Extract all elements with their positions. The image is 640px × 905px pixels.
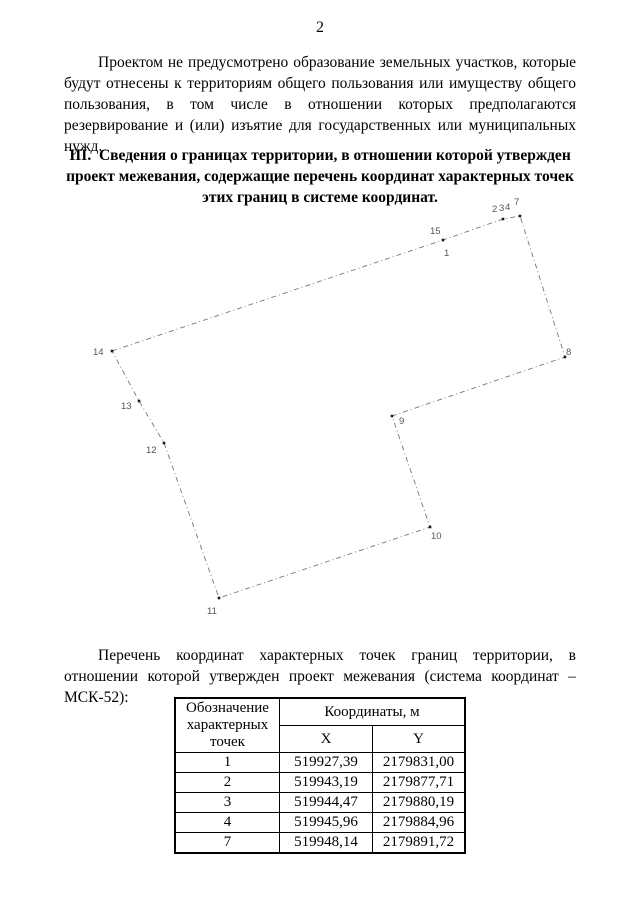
table-row: 2519943,192179877,71 bbox=[175, 773, 465, 793]
vertex-label-15: 15 bbox=[430, 226, 441, 237]
point-cell: 2 bbox=[175, 773, 280, 793]
vertex-dot-2-3-4 bbox=[502, 218, 505, 221]
vertex-label-12: 12 bbox=[146, 445, 157, 456]
table-row: 3519944,472179880,19 bbox=[175, 793, 465, 813]
boundary-plan-svg: 1512347148139121011 bbox=[0, 195, 640, 630]
document-page: 2 Проектом не предусмотрено образование … bbox=[0, 0, 640, 905]
point-cell: 1 bbox=[175, 753, 280, 773]
vertex-label-1: 1 bbox=[444, 248, 449, 259]
table-row: 4519945,962179884,96 bbox=[175, 813, 465, 833]
vertex-label-9: 9 bbox=[399, 416, 404, 427]
vertex-label-14: 14 bbox=[93, 347, 104, 358]
point-cell: 3 bbox=[175, 793, 280, 813]
x-cell: 519944,47 bbox=[280, 793, 373, 813]
points-column-header: Обозначение характерных точек bbox=[175, 698, 280, 753]
vertex-dot-9 bbox=[391, 415, 394, 418]
vertex-dot-15-1 bbox=[442, 239, 445, 242]
point-cell: 7 bbox=[175, 833, 280, 854]
vertex-label-11: 11 bbox=[207, 606, 217, 617]
x-cell: 519948,14 bbox=[280, 833, 373, 854]
table-row: 7519948,142179891,72 bbox=[175, 833, 465, 854]
vertex-label-3: 3 bbox=[499, 203, 504, 214]
boundary-polygon bbox=[112, 216, 565, 598]
boundary-plan-diagram: 1512347148139121011 bbox=[0, 195, 640, 630]
coordinates-table: Обозначение характерных точек Координаты… bbox=[174, 697, 466, 854]
x-cell: 519945,96 bbox=[280, 813, 373, 833]
vertex-label-10: 10 bbox=[431, 531, 442, 542]
y-cell: 2179880,19 bbox=[373, 793, 466, 813]
table-header-row: Обозначение характерных точек Координаты… bbox=[175, 698, 465, 726]
x-column-header: X bbox=[280, 726, 373, 753]
y-cell: 2179884,96 bbox=[373, 813, 466, 833]
vertex-dot-13 bbox=[138, 400, 141, 403]
point-cell: 4 bbox=[175, 813, 280, 833]
vertex-dot-14 bbox=[111, 350, 114, 353]
y-cell: 2179877,71 bbox=[373, 773, 466, 793]
page-number: 2 bbox=[0, 19, 640, 37]
vertex-dot-11 bbox=[218, 597, 221, 600]
x-cell: 519943,19 bbox=[280, 773, 373, 793]
y-cell: 2179831,00 bbox=[373, 753, 466, 773]
intro-paragraph: Проектом не предусмотрено образование зе… bbox=[64, 52, 576, 157]
vertex-label-13: 13 bbox=[121, 401, 132, 412]
table-row: 1519927,392179831,00 bbox=[175, 753, 465, 773]
vertex-dot-12 bbox=[163, 442, 166, 445]
vertex-label-8: 8 bbox=[566, 347, 571, 358]
coords-column-header: Координаты, м bbox=[280, 698, 466, 726]
vertex-dot-10 bbox=[429, 526, 432, 529]
y-cell: 2179891,72 bbox=[373, 833, 466, 854]
vertex-dot-7 bbox=[519, 215, 522, 218]
y-column-header: Y bbox=[373, 726, 466, 753]
vertex-label-2: 2 bbox=[492, 204, 497, 215]
vertex-label-4: 4 bbox=[505, 202, 510, 213]
vertex-label-7: 7 bbox=[514, 197, 519, 208]
x-cell: 519927,39 bbox=[280, 753, 373, 773]
